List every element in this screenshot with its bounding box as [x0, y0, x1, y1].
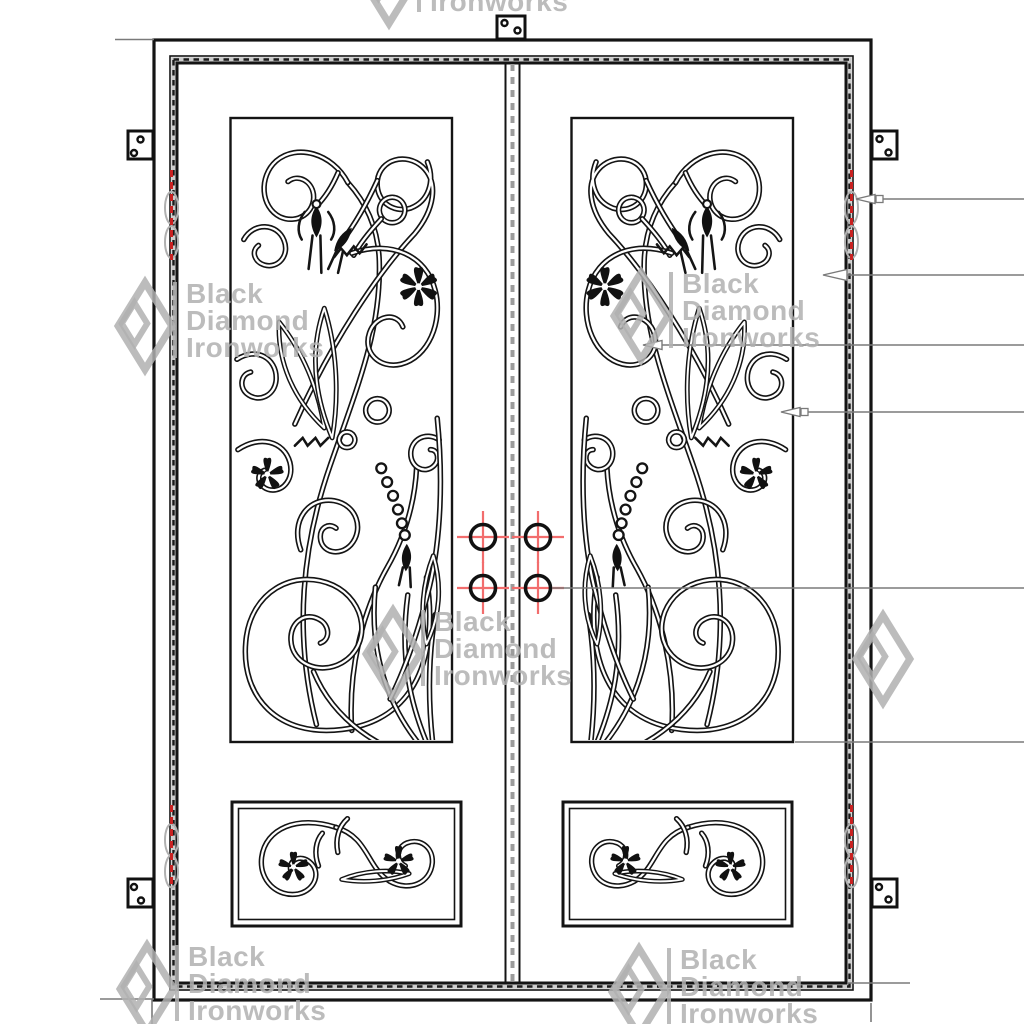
mounting-brackets: [128, 16, 897, 907]
left-lower-scrollwork: [261, 819, 432, 895]
cad-drawing-stage: BlackDiamondIronworks BlackDiamondIronwo…: [0, 0, 1024, 1024]
door-elevation-drawing: [0, 0, 1024, 1024]
right-lower-scrollwork: [592, 819, 763, 895]
left-upper-scrollwork: [237, 152, 441, 762]
right-upper-scrollwork: [583, 152, 787, 762]
